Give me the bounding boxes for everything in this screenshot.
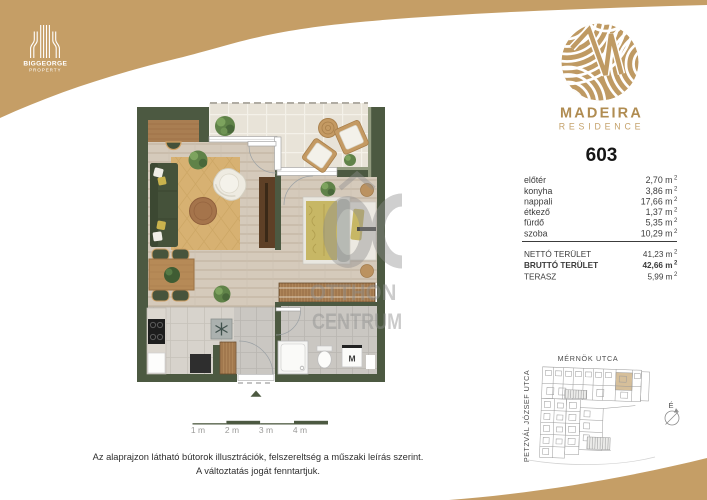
svg-text:szoba: szoba (524, 229, 548, 239)
svg-text:2: 2 (674, 261, 678, 267)
svg-text:MADEIRA: MADEIRA (560, 105, 643, 121)
svg-text:2: 2 (674, 229, 678, 235)
svg-text:42,66 m: 42,66 m (642, 261, 672, 270)
svg-text:3,86 m: 3,86 m (646, 186, 673, 196)
svg-text:MÉRNÖK UTCA: MÉRNÖK UTCA (558, 354, 619, 363)
svg-text:4 m: 4 m (293, 425, 307, 435)
svg-text:2,70 m: 2,70 m (646, 175, 673, 185)
svg-text:2: 2 (674, 187, 678, 193)
svg-text:A változtatás jogát fenntartju: A változtatás jogát fenntartjuk. (196, 466, 320, 476)
svg-text:1,37 m: 1,37 m (646, 207, 673, 217)
svg-text:2: 2 (674, 218, 678, 224)
svg-text:2: 2 (674, 197, 678, 203)
svg-text:603: 603 (586, 145, 618, 166)
svg-text:OTTHON: OTTHON (310, 280, 396, 305)
svg-text:2: 2 (674, 250, 678, 256)
svg-text:PROPERTY: PROPERTY (29, 67, 61, 72)
svg-text:RESIDENCE: RESIDENCE (559, 121, 645, 131)
svg-text:M: M (348, 354, 355, 364)
svg-text:5,35 m: 5,35 m (646, 218, 673, 228)
svg-text:Az alaprajzon látható bútorok: Az alaprajzon látható bútorok illusztrác… (93, 452, 424, 462)
svg-text:2: 2 (674, 176, 678, 182)
svg-text:PETZVÁL JÓZSEF UTCA: PETZVÁL JÓZSEF UTCA (522, 370, 531, 462)
svg-text:nappali: nappali (524, 197, 552, 207)
svg-text:étkező: étkező (524, 207, 550, 217)
svg-text:CENTRUM: CENTRUM (312, 310, 402, 334)
svg-text:2: 2 (674, 272, 678, 278)
svg-text:41,23 m: 41,23 m (643, 250, 673, 259)
svg-text:10,29 m: 10,29 m (641, 229, 673, 239)
svg-text:17,66 m: 17,66 m (641, 197, 673, 207)
svg-text:konyha: konyha (524, 186, 552, 196)
svg-text:2: 2 (674, 208, 678, 214)
svg-text:NETTÓ TERÜLET: NETTÓ TERÜLET (524, 249, 591, 259)
svg-text:TERASZ: TERASZ (524, 273, 556, 282)
svg-text:1 m: 1 m (191, 425, 205, 435)
svg-text:3 m: 3 m (259, 425, 273, 435)
svg-text:BRUTTÓ TERÜLET: BRUTTÓ TERÜLET (524, 259, 598, 270)
svg-text:5,99 m: 5,99 m (647, 273, 672, 282)
svg-text:fürdő: fürdő (524, 218, 544, 228)
svg-text:2 m: 2 m (225, 425, 239, 435)
svg-text:É: É (668, 401, 673, 410)
svg-text:előtér: előtér (524, 175, 546, 185)
